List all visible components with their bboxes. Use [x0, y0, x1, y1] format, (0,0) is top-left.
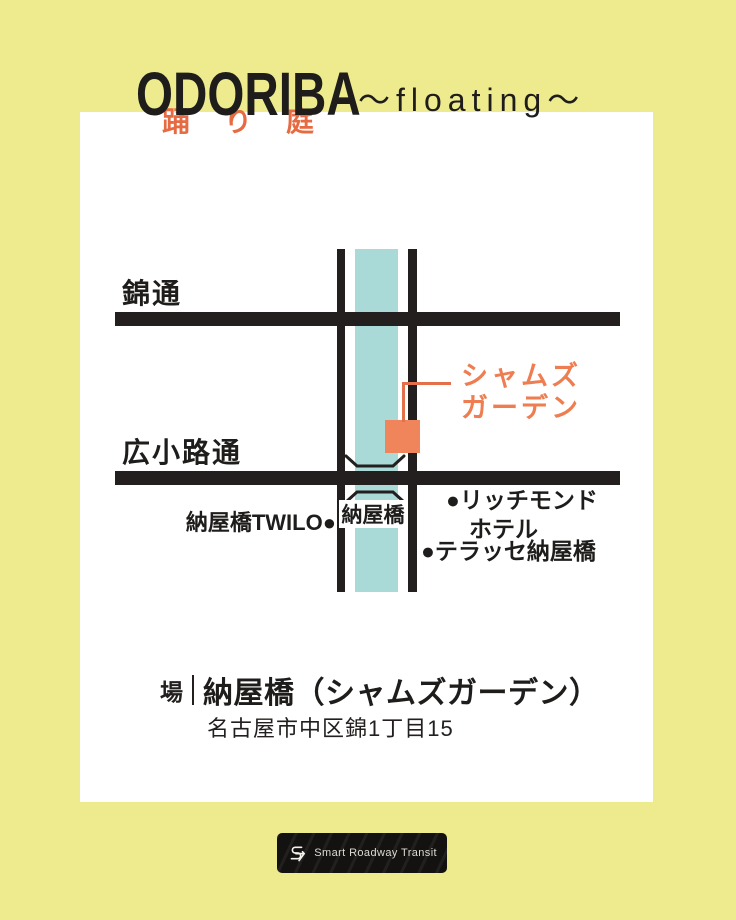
venue-info-row: 場 納屋橋（シャムズガーデン）: [160, 668, 600, 712]
srt-logo-text: Smart Roadway Transit: [314, 847, 437, 859]
bridge-label-nayabashi: 納屋橋: [339, 500, 407, 528]
venue-marker-label: シャムズ ガーデン: [461, 361, 581, 424]
road-hirokoji-dori: [115, 471, 620, 485]
venue-name: 納屋橋（シャムズガーデン）: [203, 668, 600, 712]
bridge-mark-north: [344, 453, 406, 470]
venue-address: 名古屋市中区錦1丁目15: [207, 711, 454, 743]
event-map-poster: 踊り庭 ODORIBA 〜floating〜 錦通 広小路通 シャムズ ガーデン…: [0, 0, 736, 920]
poi-terrasse-nayabashi: ●テラッセ納屋橋: [421, 537, 596, 566]
event-title: ODORIBA: [136, 64, 361, 125]
srt-logo-badge: Smart Roadway Transit: [277, 833, 447, 873]
venue-divider-bar: [192, 675, 194, 705]
poi-nayabashi-twilo: 納屋橋TWILO●: [150, 509, 336, 537]
venue-callout-line-vertical: [402, 382, 405, 422]
road-label-nishiki: 錦通: [122, 280, 182, 308]
venue-marker-square: [385, 420, 420, 453]
venue-prefix-label: 場: [160, 673, 183, 707]
event-subtitle: 〜floating〜: [358, 84, 585, 116]
vertical-road-west: [337, 249, 345, 592]
poi-richmond-hotel: ●リッチモンド ホテル: [446, 486, 598, 544]
srt-logo-icon: [287, 839, 307, 867]
road-nishiki-dori: [115, 312, 620, 326]
poi-richmond-hotel-line1: ●リッチモンド: [446, 486, 598, 515]
venue-marker-label-line1: シャムズ: [461, 361, 581, 393]
road-label-hirokoji: 広小路通: [122, 439, 242, 467]
venue-callout-line-horizontal: [402, 382, 451, 385]
venue-marker-label-line2: ガーデン: [461, 393, 581, 425]
